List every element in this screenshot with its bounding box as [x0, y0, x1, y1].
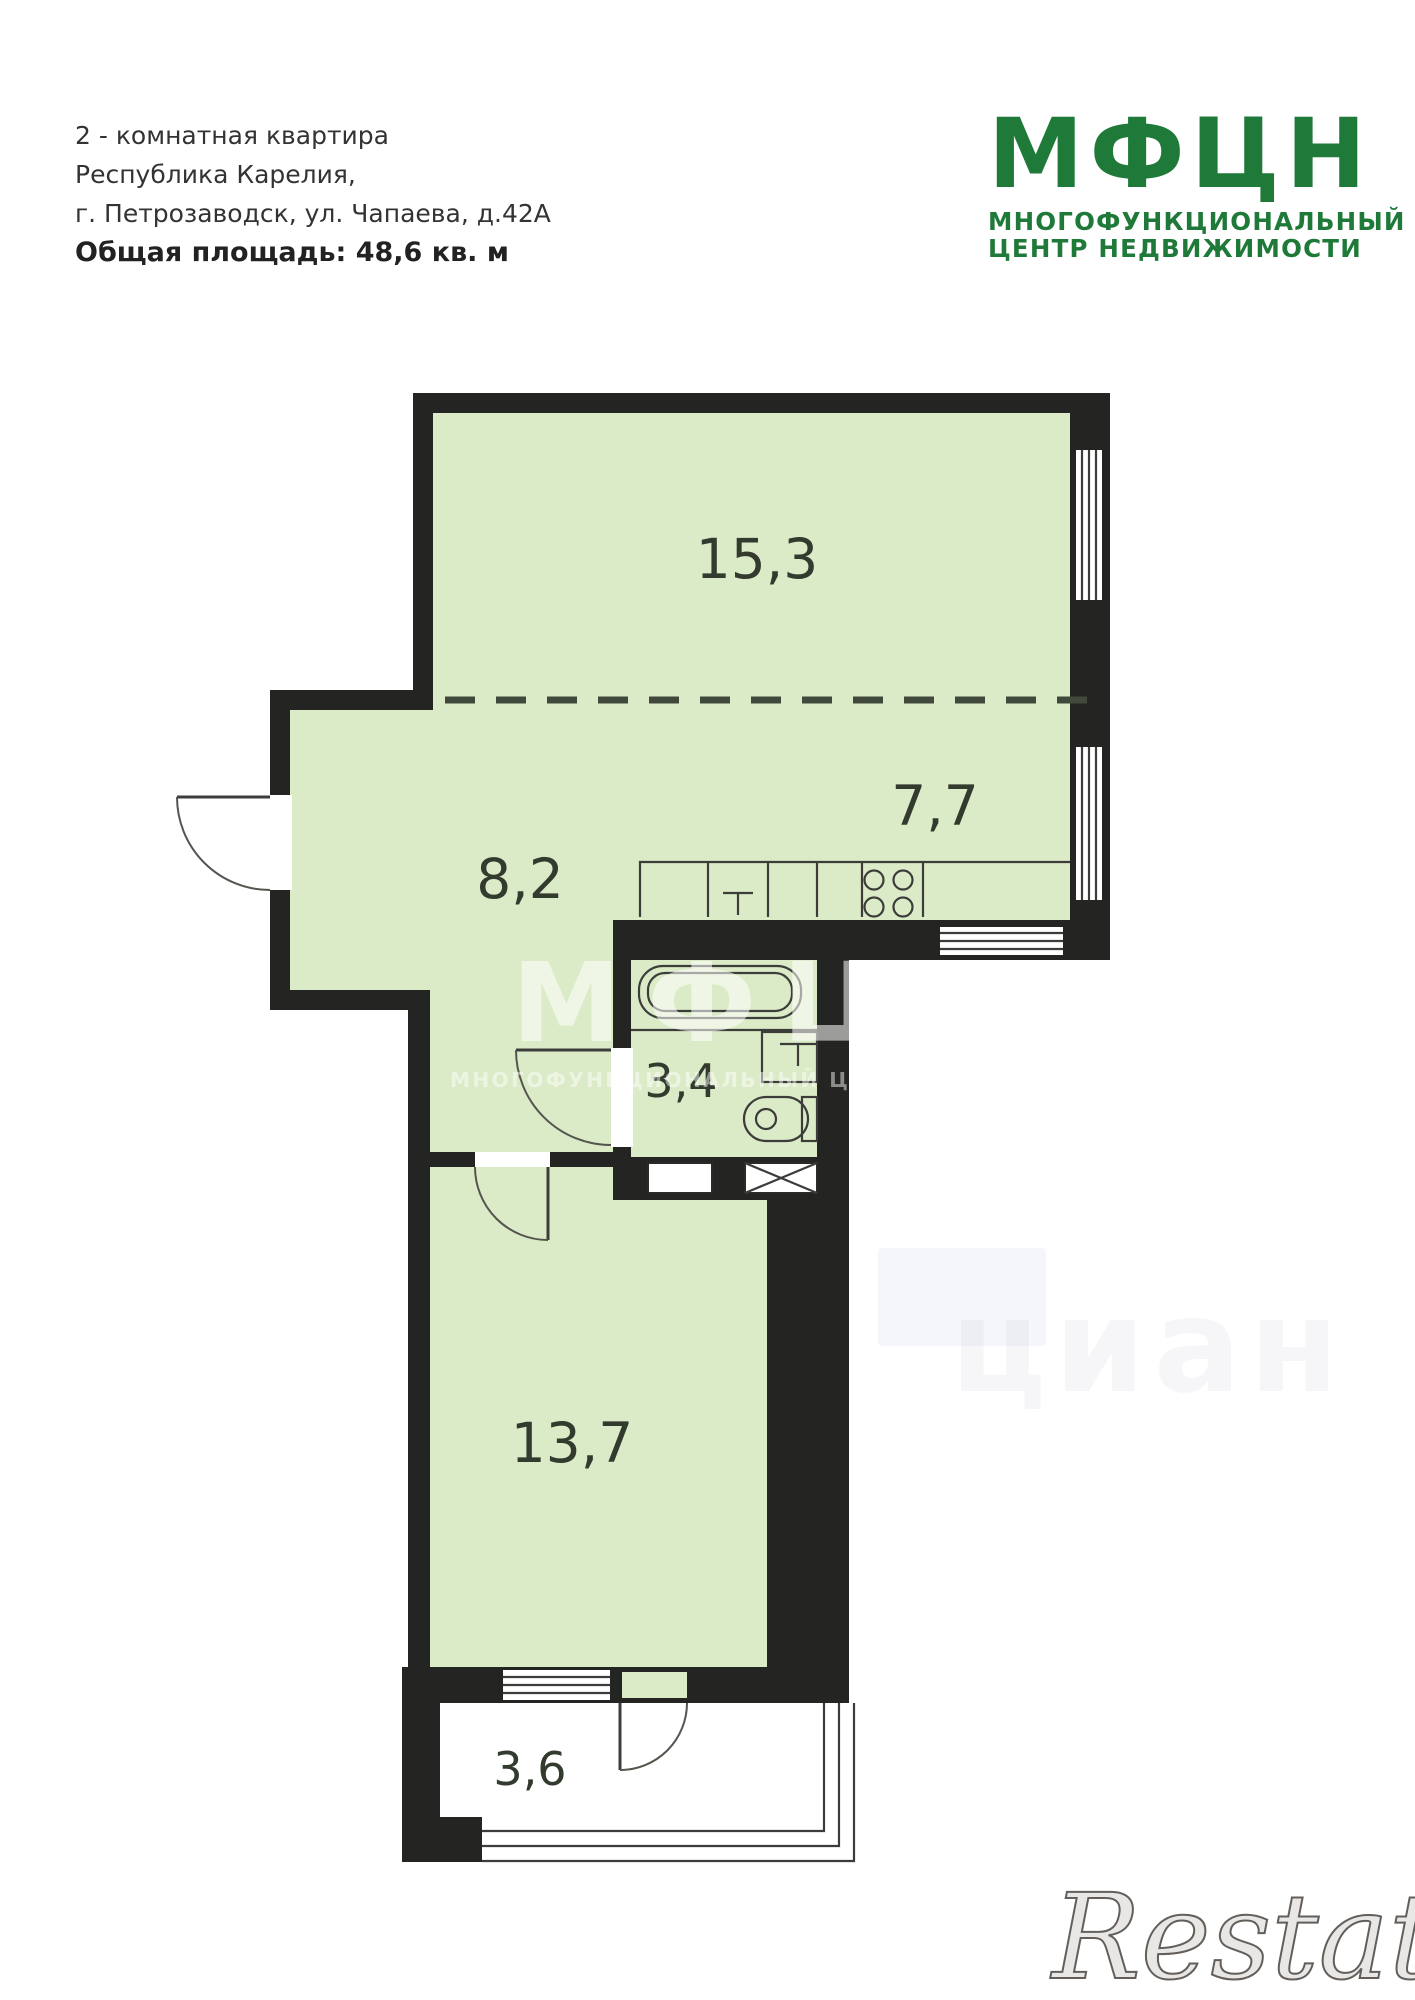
wall-nook-top	[270, 690, 413, 710]
wall-left-lower	[408, 990, 430, 1703]
wall-balcony-corner	[402, 1817, 482, 1862]
balcony-door-opening	[622, 1672, 687, 1698]
restate-watermark: Restate	[1052, 1868, 1415, 2000]
entrance-door-swing	[177, 797, 270, 890]
balcony-door-swing	[620, 1703, 687, 1770]
label-bedroom-area: 13,7	[511, 1411, 633, 1475]
label-balcony-area: 3,6	[493, 1742, 566, 1796]
hallway-floor	[430, 710, 613, 1152]
wall-lower-right	[767, 1200, 849, 1703]
entrance-door-opening	[268, 795, 292, 890]
wall-bath-left-a	[613, 940, 631, 1050]
wall-left-upper	[413, 413, 433, 710]
bathroom-door-opening	[611, 1048, 633, 1147]
label-hallway-area: 8,2	[476, 847, 563, 911]
faint-watermark-text: циан	[950, 1270, 1347, 1422]
room-fills	[290, 413, 1070, 1667]
vent-shaft-icon	[648, 1163, 712, 1193]
wall-top	[413, 393, 1110, 413]
label-kitchen-area: 7,7	[891, 774, 978, 838]
label-living-area: 15,3	[696, 527, 818, 591]
wall-bedroom-top-a	[430, 1152, 475, 1167]
wall-bedroom-top-b	[550, 1152, 613, 1167]
wall-nook-bottom	[270, 990, 408, 1010]
wall-nook-left-a	[270, 710, 290, 797]
floor-plan: 15,3 7,7 8,2 3,4 13,7 3,6	[0, 0, 1415, 2000]
entry-nook-floor	[290, 710, 433, 992]
label-bathroom-area: 3,4	[644, 1054, 717, 1108]
